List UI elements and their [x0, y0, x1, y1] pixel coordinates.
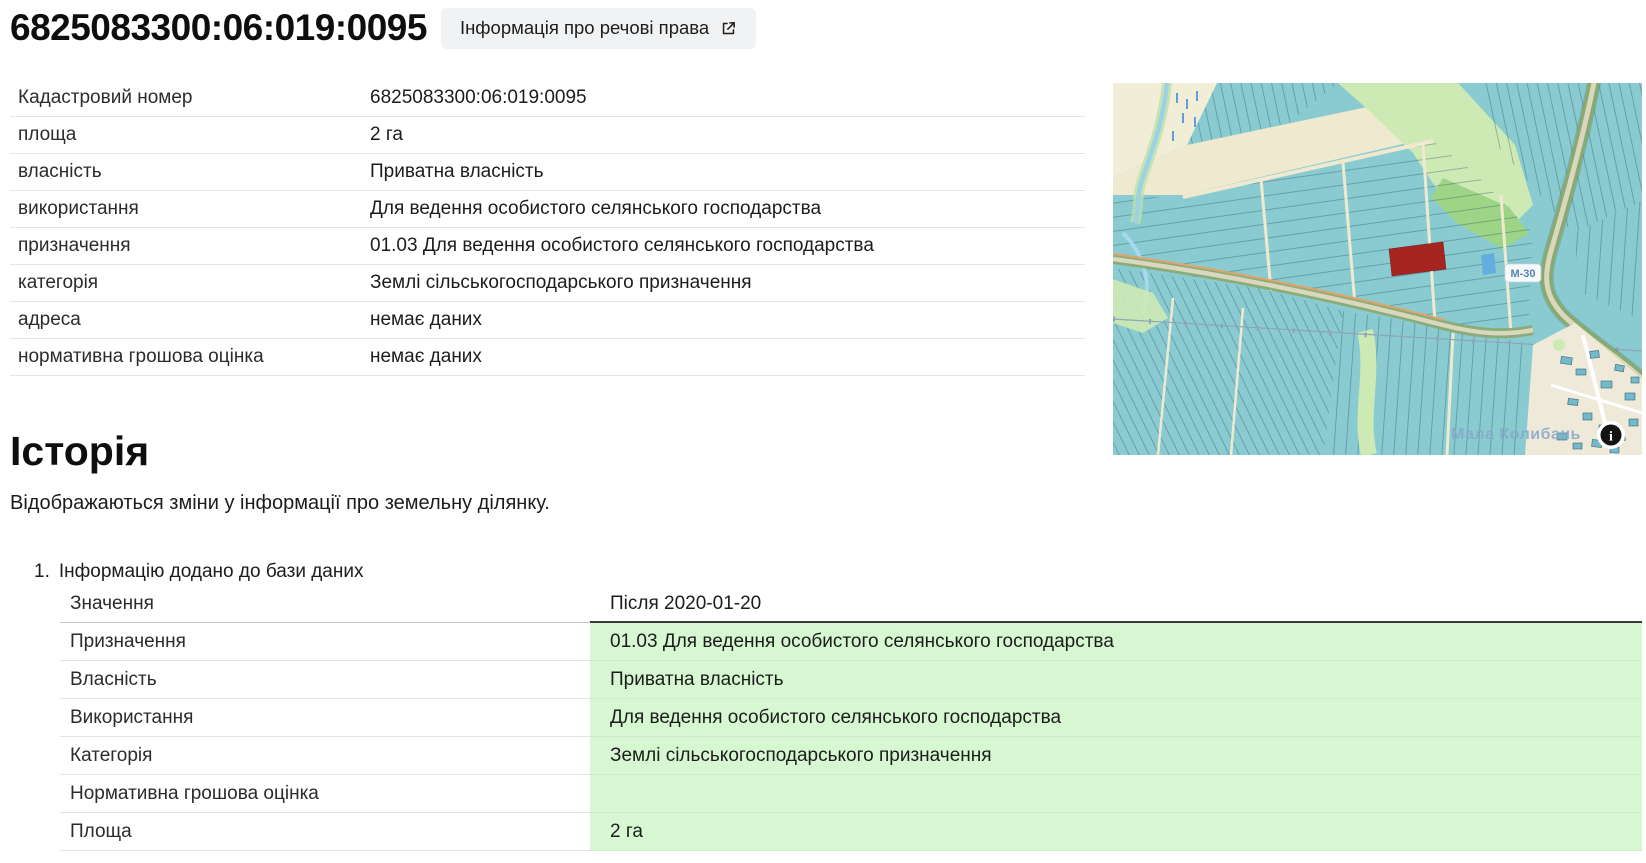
history-item-number: 1. [34, 561, 50, 583]
row-value: 6825083300:06:019:0095 [370, 87, 1085, 109]
row-value: Землі сільськогосподарського призначення [590, 737, 1642, 775]
road-label-badge: М-30 [1505, 264, 1541, 282]
row-label: Площа [60, 813, 590, 851]
table-row: призначення 01.03 Для ведення особистого… [10, 228, 1085, 265]
row-label: призначення [10, 235, 370, 257]
history-table: Значення Після 2020-01-20 Призначення 01… [60, 586, 1642, 851]
row-value: 01.03 Для ведення особистого селянського… [370, 235, 1085, 257]
row-value: 2 га [370, 124, 1085, 146]
row-label: Кадастровий номер [10, 87, 370, 109]
table-row: Призначення 01.03 Для ведення особистого… [60, 623, 1642, 661]
parcel-info-table: Кадастровий номер 6825083300:06:019:0095… [10, 80, 1085, 376]
info-icon: i [1609, 430, 1613, 445]
page-header: 6825083300:06:019:0095 Інформація про ре… [10, 0, 756, 56]
row-value [590, 775, 1642, 813]
table-row: Нормативна грошова оцінка [60, 775, 1642, 813]
column-header-value: Після 2020-01-20 [590, 586, 1642, 623]
row-value: Для ведення особистого селянського госпо… [590, 699, 1642, 737]
table-row: Використання Для ведення особистого селя… [60, 699, 1642, 737]
history-item-title: Інформацію додано до бази даних [59, 561, 364, 583]
row-value: немає даних [370, 346, 1085, 368]
table-row: адреса немає даних [10, 302, 1085, 339]
row-label: категорія [10, 272, 370, 294]
row-label: використання [10, 198, 370, 220]
row-value: Приватна власність [590, 661, 1642, 699]
rights-info-button[interactable]: Інформація про речові права [441, 8, 756, 49]
road-label: М-30 [1510, 268, 1535, 280]
table-row: Кадастровий номер 6825083300:06:019:0095 [10, 80, 1085, 117]
row-value: Приватна власність [370, 161, 1085, 183]
row-value: 2 га [590, 813, 1642, 851]
row-label: Нормативна грошова оцінка [60, 775, 590, 813]
row-value: немає даних [370, 309, 1085, 331]
history-header-row: Значення Після 2020-01-20 [60, 586, 1642, 623]
cadastral-parcel-page: 6825083300:06:019:0095 Інформація про ре… [0, 0, 1646, 863]
row-value: Для ведення особистого селянського госпо… [370, 198, 1085, 220]
row-label: нормативна грошова оцінка [10, 346, 370, 368]
row-label: площа [10, 124, 370, 146]
table-row: Власність Приватна власність [60, 661, 1642, 699]
external-link-icon [720, 20, 737, 37]
table-row: Площа 2 га [60, 813, 1642, 851]
row-label: Використання [60, 699, 590, 737]
row-label: власність [10, 161, 370, 183]
table-row: категорія Землі сільськогосподарського п… [10, 265, 1085, 302]
rights-info-button-label: Інформація про речові права [460, 17, 709, 39]
history-heading: Історія [10, 428, 149, 475]
table-row: нормативна грошова оцінка немає даних [10, 339, 1085, 376]
page-title: 6825083300:06:019:0095 [10, 7, 427, 49]
row-label: адреса [10, 309, 370, 331]
row-value: Землі сільськогосподарського призначення [370, 272, 1085, 294]
map-graphic: М-30 Мала Колибань i [1113, 83, 1642, 455]
table-row: використання Для ведення особистого селя… [10, 191, 1085, 228]
row-label: Категорія [60, 737, 590, 775]
history-item: 1. Інформацію додано до бази даних [34, 561, 363, 583]
history-description: Відображаються зміни у інформації про зе… [10, 492, 550, 515]
row-value: 01.03 Для ведення особистого селянського… [590, 623, 1642, 661]
row-label: Власність [60, 661, 590, 699]
place-label: Мала Колибань [1451, 426, 1581, 443]
map-info-button[interactable]: i [1597, 421, 1625, 449]
table-row: Категорія Землі сільськогосподарського п… [60, 737, 1642, 775]
table-row: власність Приватна власність [10, 154, 1085, 191]
row-label: Призначення [60, 623, 590, 661]
cadastral-map[interactable]: М-30 Мала Колибань i [1113, 83, 1642, 455]
column-header-label: Значення [60, 586, 590, 623]
table-row: площа 2 га [10, 117, 1085, 154]
